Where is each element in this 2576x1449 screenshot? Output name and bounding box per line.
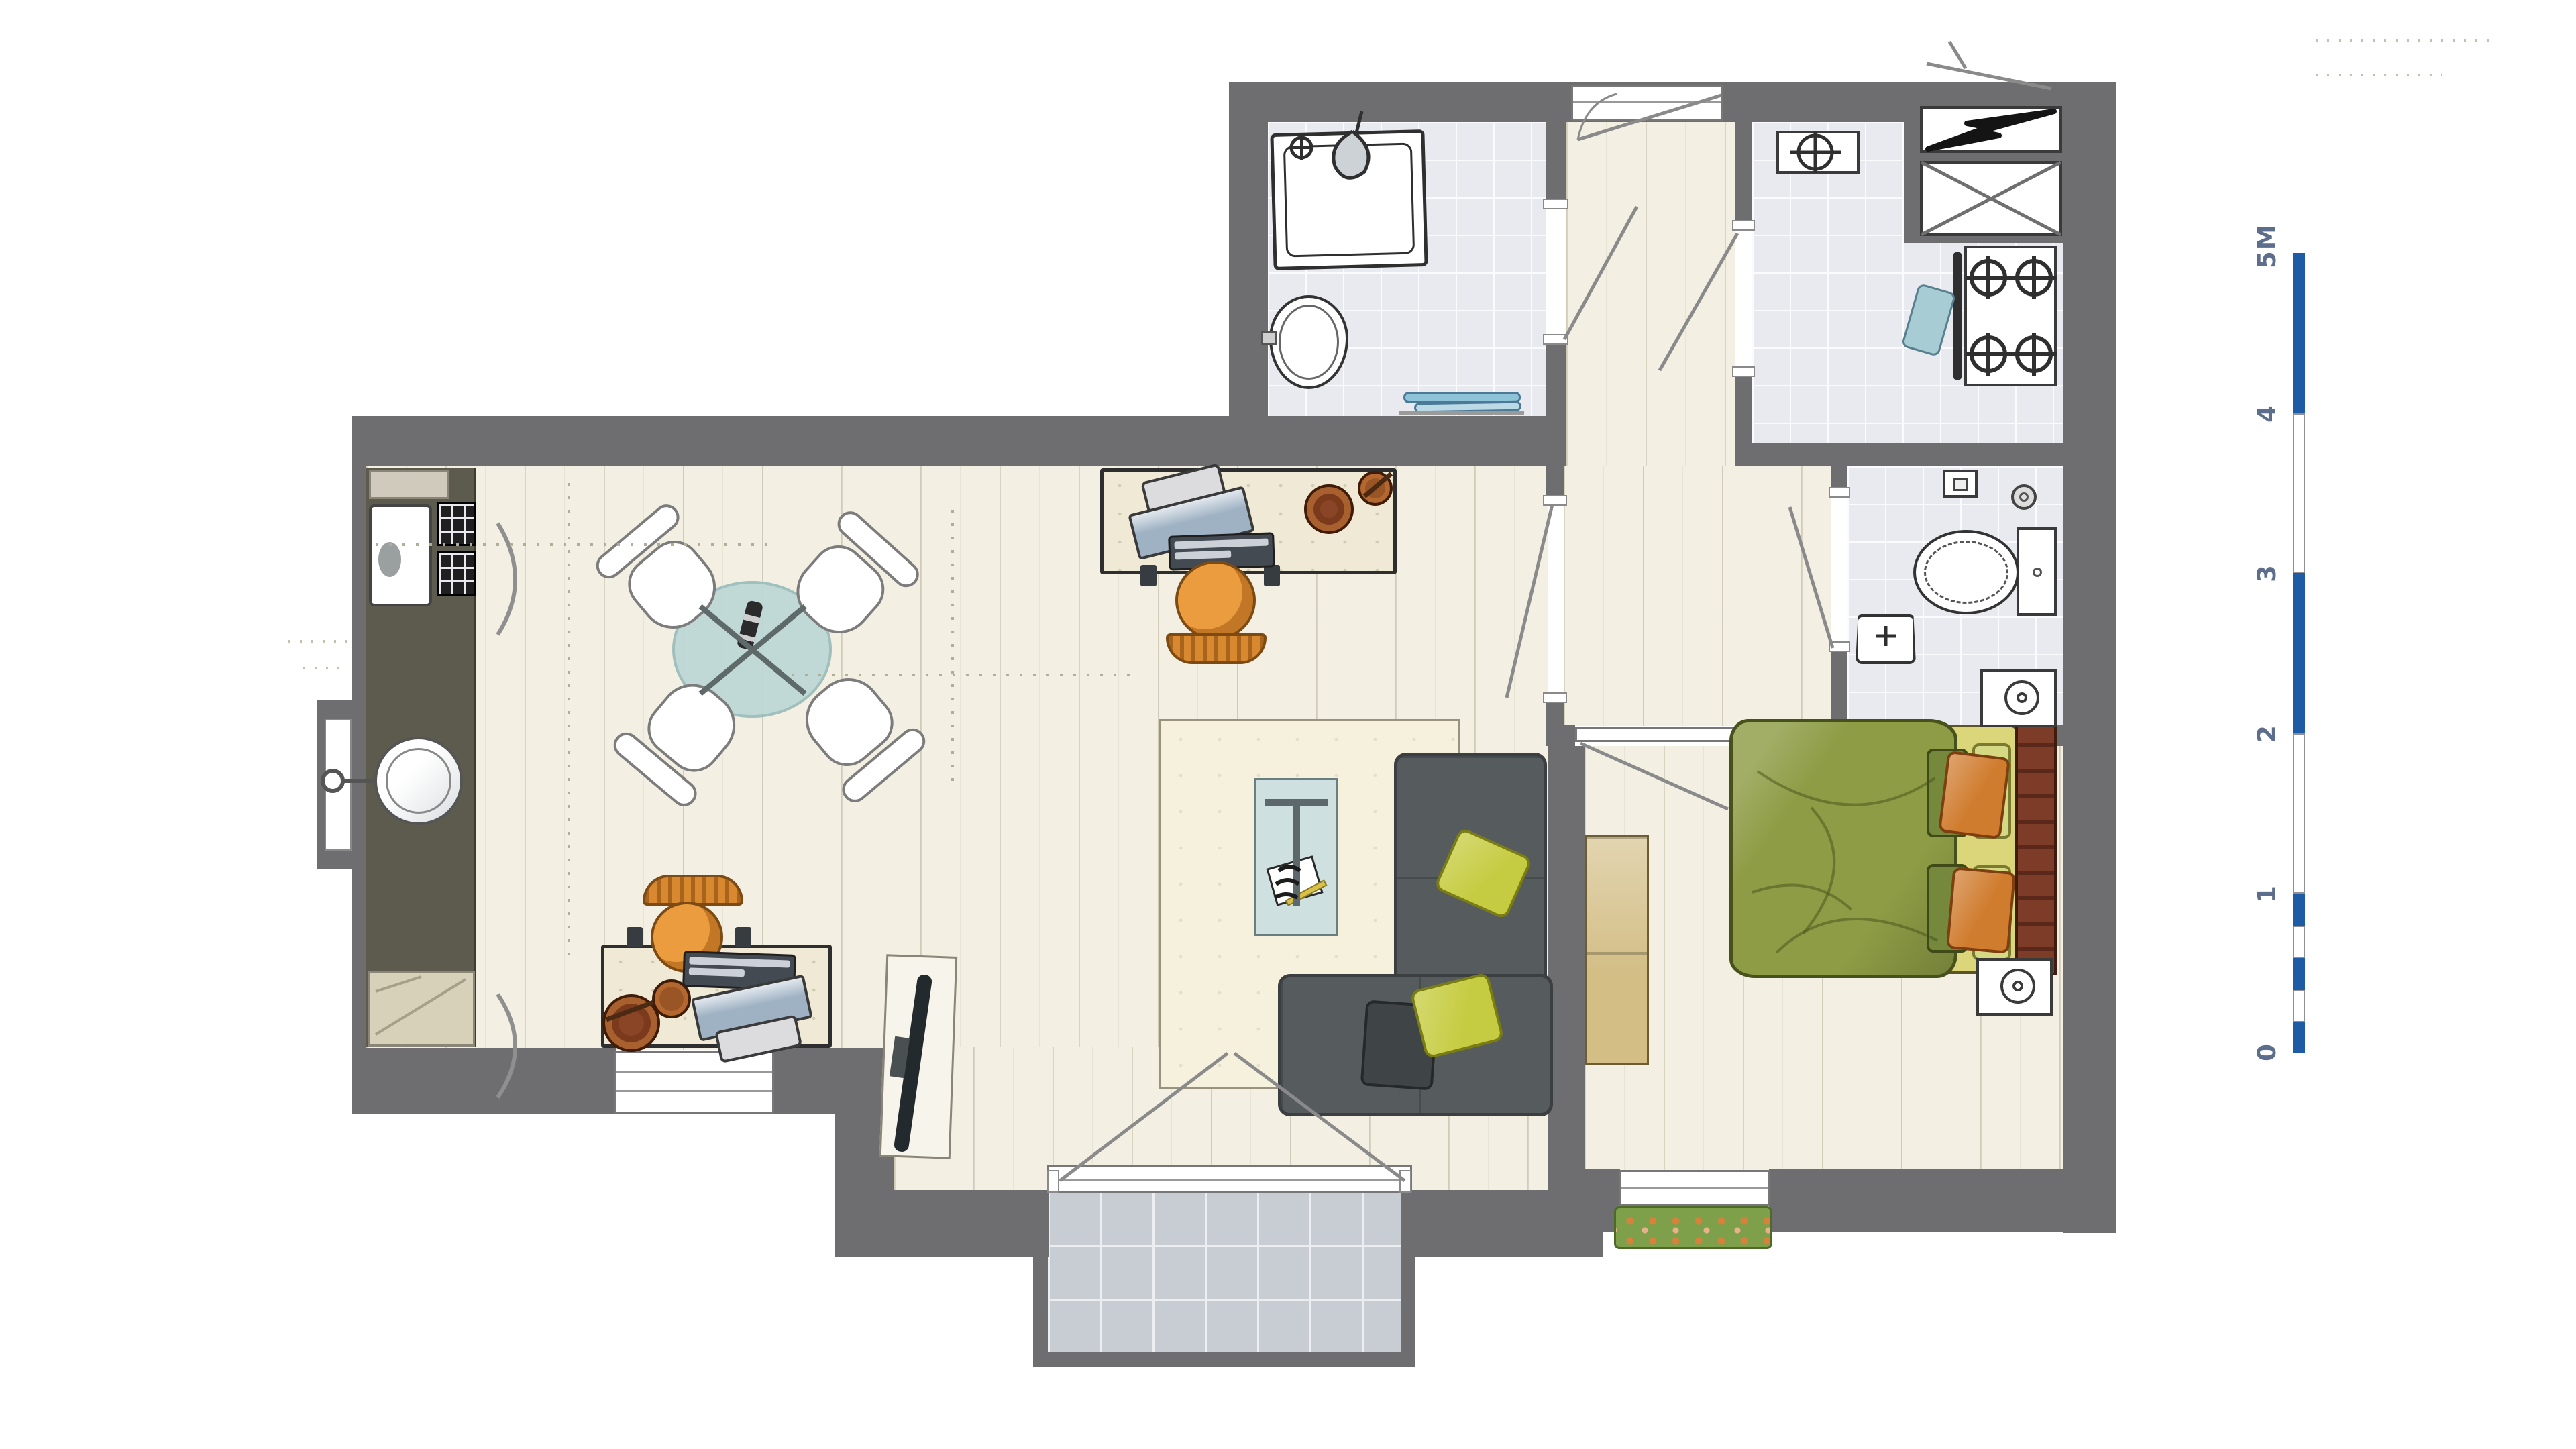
closet-exterior-door-line-2 [1949, 42, 1966, 68]
scale-segment-3-2 [2293, 573, 2305, 733]
kitchenette-round-sink [374, 737, 463, 825]
wall-living-bedroom [1548, 746, 1585, 1190]
desk-top-post-left [1140, 565, 1157, 586]
scale-sub-3 [2293, 958, 2305, 990]
keyboard-keys [1175, 551, 1231, 560]
desk-lamp-bottom-joint [652, 979, 691, 1018]
keyboard-keys [1174, 539, 1268, 549]
jamb-balcony-left [1047, 1170, 1059, 1193]
wall-bedroom-bottom-b [1769, 1169, 2066, 1232]
scale-label-4: 4 [2253, 393, 2279, 433]
scale-segment-5-4 [2293, 253, 2305, 413]
flower-box [1614, 1206, 1772, 1249]
window-living-left [614, 1051, 774, 1114]
wall-right [2063, 82, 2116, 1233]
scale-label-0: 0 [2253, 1032, 2279, 1072]
scale-label-5m: 5M [2253, 228, 2279, 268]
bed-headboard [2015, 723, 2057, 975]
desk-top-post-right [1264, 565, 1280, 586]
floor-plan-canvas: 5M 4 3 2 1 0 [0, 0, 2576, 1449]
wall-kitchen-left-b [1735, 370, 1752, 444]
balcony-wall-bottom [1033, 1352, 1415, 1367]
towel-shelf [1399, 411, 1524, 415]
corridor-floor [1564, 466, 1831, 726]
wall-bathroom-right-b [1546, 339, 1566, 466]
jamb-kitchen-bottom [1732, 366, 1755, 377]
jamb-living-top [1543, 495, 1567, 506]
jamb-kitchen-top [1732, 220, 1755, 231]
jamb-wc-top [1829, 487, 1850, 498]
desk-bottom-post-left [627, 927, 643, 947]
balcony-door-sill [1047, 1165, 1412, 1193]
wc-drain [2011, 484, 2037, 510]
toilet-bowl [1913, 530, 2019, 614]
toilet-paper-holder [1943, 470, 1978, 498]
jamb-wc-bottom [1829, 641, 1850, 652]
jamb-balcony-right [1399, 1170, 1411, 1193]
wall-living-top [352, 416, 1566, 466]
nightstand-bottom-lamp-icon [2000, 969, 2035, 1004]
scale-label-2: 2 [2253, 713, 2279, 753]
wc-corner-sink [1856, 614, 1916, 664]
desk-lamp-bottom [602, 994, 660, 1052]
scale-bar: 5M 4 3 2 1 0 [2241, 221, 2328, 1087]
scale-sub-1 [2293, 894, 2305, 926]
entrance-threshold [1571, 85, 1723, 121]
wall-topblock-left [1229, 122, 1268, 466]
wall-left [352, 465, 366, 1048]
bathroom-sink-faucet [1261, 331, 1277, 345]
hallway-floor [1566, 122, 1735, 466]
jamb-bathroom-top [1543, 199, 1568, 209]
window-bedroom [1619, 1170, 1770, 1206]
scale-segment-2-1 [2293, 733, 2305, 894]
desk-chair-top-seat [1175, 561, 1256, 640]
hob-grate-1 [437, 502, 476, 546]
wall-living-corridor-b [1546, 698, 1564, 746]
bed-duvet [1729, 719, 1957, 978]
stove-unit [1964, 246, 2057, 386]
wardrobe [1585, 835, 1649, 1065]
wall-bathroom-right-a [1546, 122, 1566, 208]
wall-bottom-center-b [1411, 1190, 1603, 1257]
balcony-wall-left [1033, 1191, 1048, 1367]
keyboard-keys [689, 967, 745, 977]
wall-bottom-center-a [894, 1190, 1049, 1257]
jamb-living-bottom [1543, 692, 1567, 703]
wall-kitchen-left-a [1735, 122, 1752, 228]
scale-sub-5 [2293, 1022, 2305, 1053]
balcony-floor [1048, 1191, 1401, 1354]
coffee-table-glass [1254, 778, 1338, 936]
wall-kitchen-bottom [1735, 443, 2066, 466]
desk-chair-bottom-back [643, 875, 743, 906]
scale-sub-2 [2293, 926, 2305, 958]
bedroom-door-leaf-bar [1575, 727, 1744, 742]
scale-label-3: 3 [2253, 553, 2279, 593]
nightstand-top-lamp-icon [2004, 680, 2039, 715]
keyboard-keys [689, 957, 790, 967]
wall-bottom-left-b [773, 1048, 845, 1114]
desk-chair-top-back [1166, 633, 1267, 664]
desk-bottom-post-right [735, 927, 751, 947]
tv-stand [879, 954, 957, 1159]
scale-label-1: 1 [2253, 873, 2279, 914]
wall-bedroom-top-a [1564, 724, 1575, 746]
scale-sub-4 [2293, 990, 2305, 1022]
wall-niche-recess [325, 719, 352, 851]
jamb-bathroom-bottom [1543, 334, 1568, 345]
bed-orange-pillow-2 [1946, 867, 2016, 954]
bed-orange-pillow-1 [1938, 751, 2010, 840]
oven-handle [1953, 252, 1962, 380]
counter-shelf [369, 470, 449, 499]
desk-lamp-top [1304, 484, 1354, 534]
counter-basin-board [369, 504, 432, 606]
balcony-wall-right [1401, 1191, 1415, 1367]
shower-tray [1270, 129, 1428, 270]
wall-bottom-left-a [352, 1048, 616, 1114]
counter-base-cabinet [368, 971, 475, 1046]
wall-wc-left-b [1831, 647, 1847, 726]
desk-lamp-top-joint [1358, 471, 1393, 506]
electrical-panel-box [1920, 106, 2062, 153]
shaft-box [1920, 161, 2062, 236]
scale-segment-4-3 [2293, 413, 2305, 573]
kitchen-sink-unit [1776, 131, 1860, 174]
toilet-tank [2017, 527, 2057, 616]
hob-grate-2 [437, 551, 476, 596]
